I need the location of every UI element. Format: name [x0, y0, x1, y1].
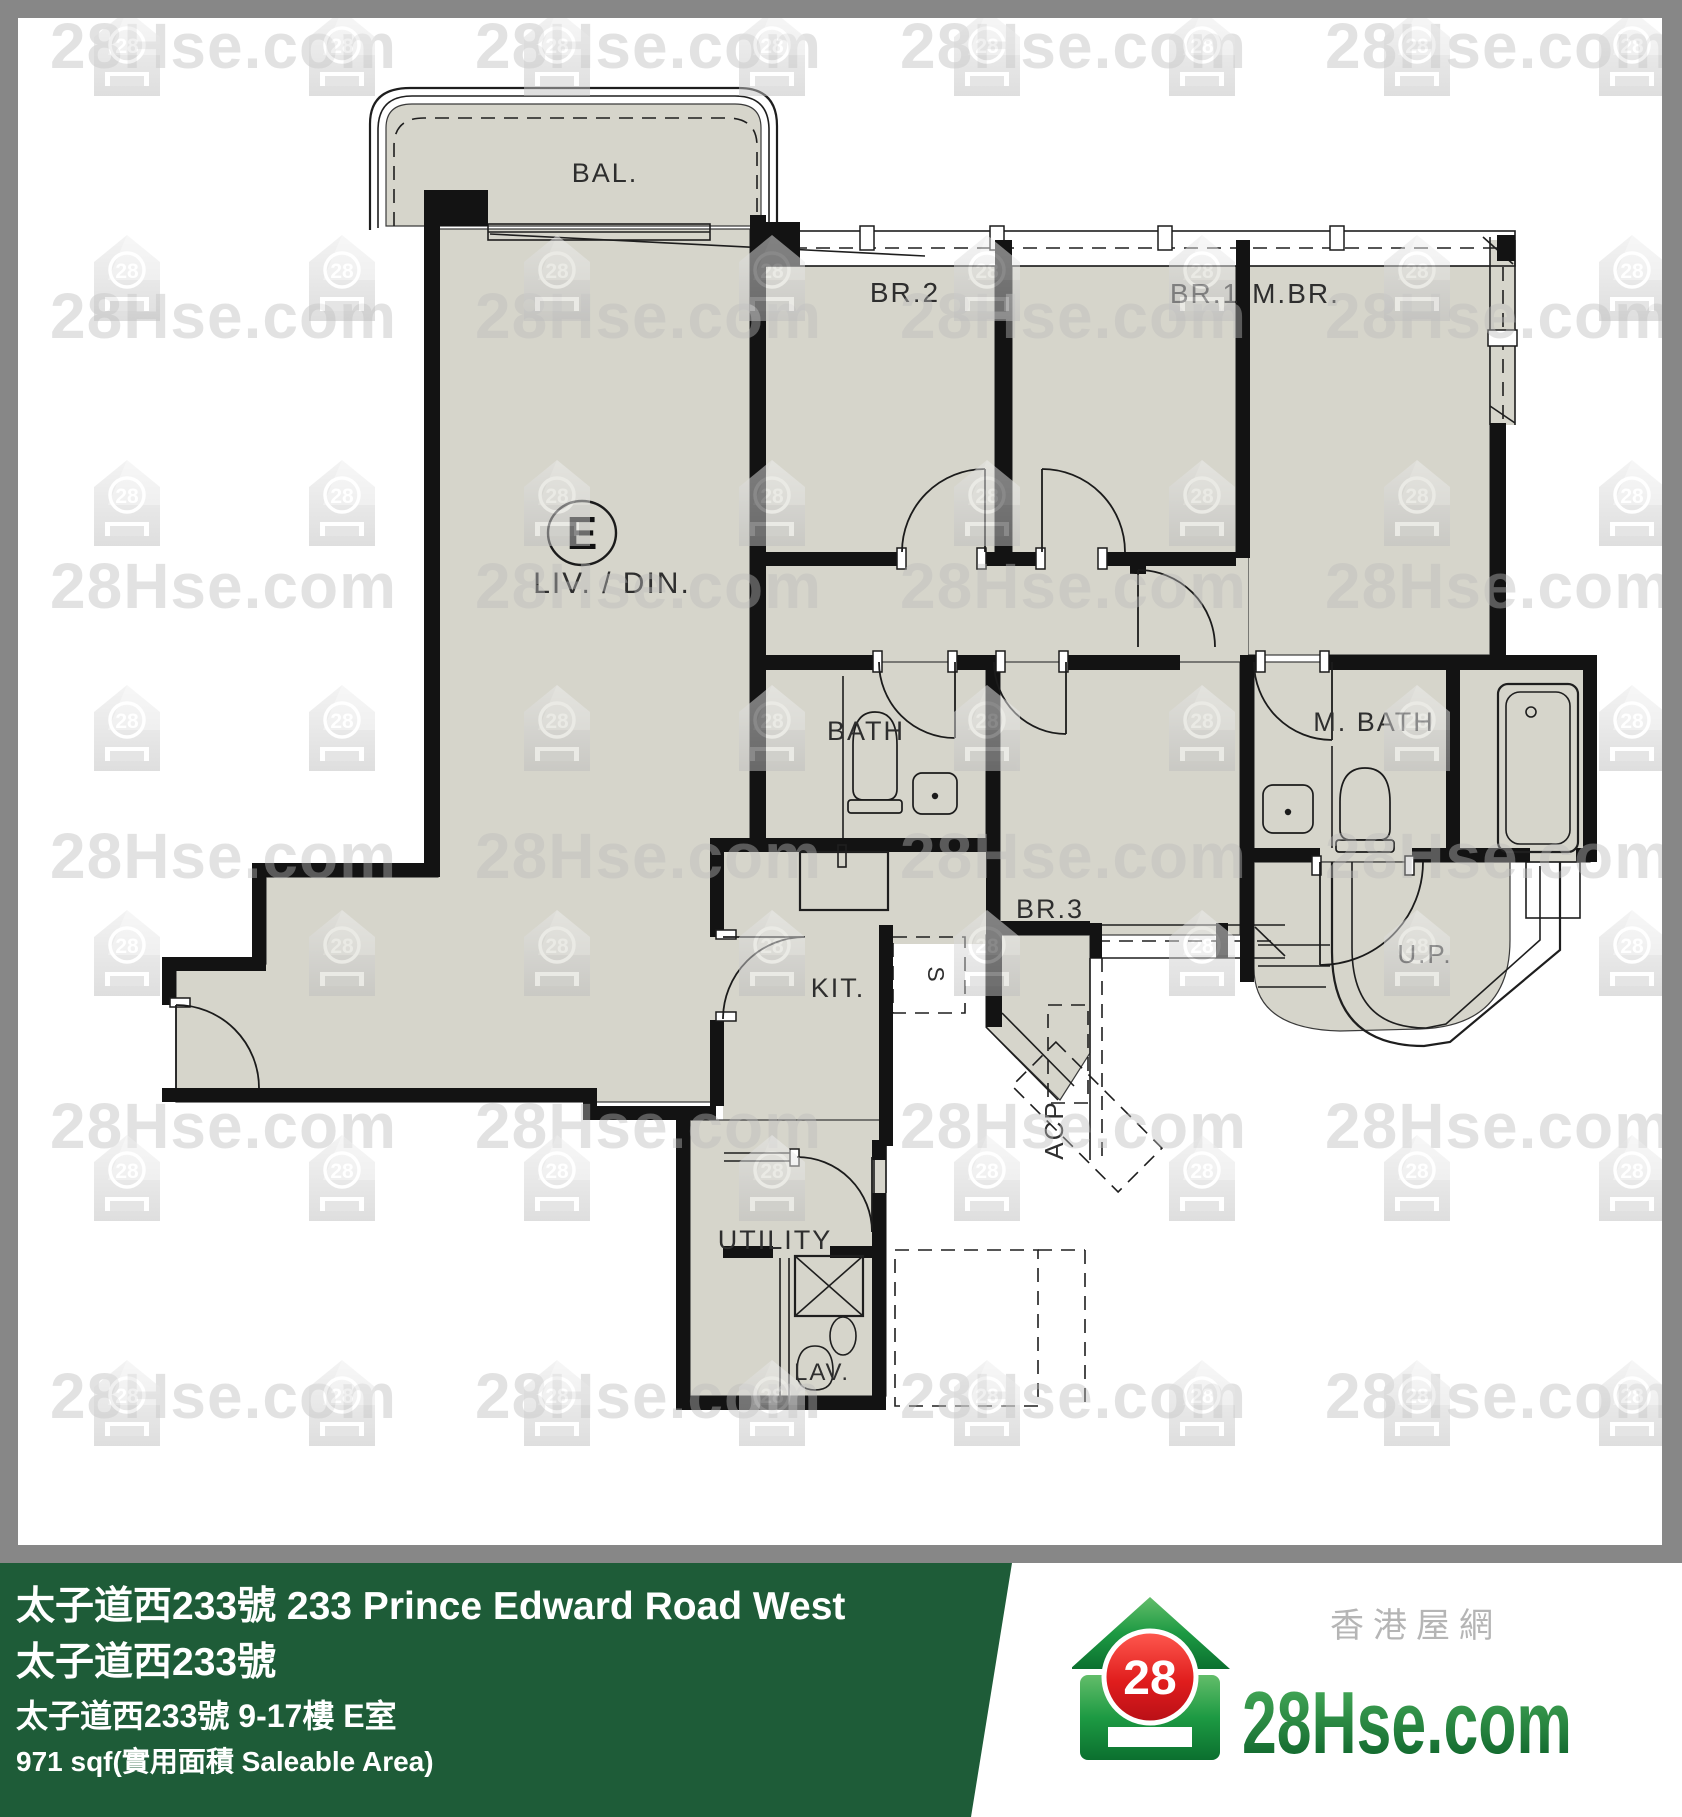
frame-border-top: [0, 0, 1682, 18]
svg-text:28Hse.com: 28Hse.com: [475, 820, 822, 892]
banner-unit-info: 太子道西233號 9-17樓 E室: [16, 1691, 397, 1737]
svg-text:28Hse.com: 28Hse.com: [900, 820, 1247, 892]
room-label-kit: KIT.: [811, 973, 866, 1003]
room-label-utility: UTILITY: [718, 1225, 833, 1255]
banner-estate-name: 太子道西233號: [16, 1631, 276, 1687]
svg-text:28Hse.com: 28Hse.com: [1325, 550, 1672, 622]
room-label-bal: BAL.: [572, 158, 639, 188]
logo-brand-text: 28Hse.com: [1242, 1673, 1572, 1772]
room-label-bath: BATH: [827, 716, 905, 746]
svg-text:28Hse.com: 28Hse.com: [900, 550, 1247, 622]
frame-border-left: [0, 0, 18, 1563]
frame-separator: [0, 1545, 1682, 1563]
svg-text:28: 28: [1123, 1652, 1176, 1705]
site-logo: 28 香港屋網 28Hse.com: [1072, 1595, 1652, 1815]
page: 28: [0, 0, 1682, 1817]
banner-area-info: 971 sqf(實用面積 Saleable Area): [16, 1740, 434, 1780]
banner-title: 太子道西233號 233 Prince Edward Road West: [16, 1575, 845, 1631]
floor-plan: 28: [0, 0, 1682, 1545]
frame-border-right: [1662, 0, 1682, 1563]
room-label-s: S: [923, 966, 949, 983]
logo-tagline: 香港屋網: [1330, 1607, 1502, 1645]
svg-text:28Hse.com: 28Hse.com: [50, 820, 397, 892]
room-label-br3: BR.3: [1016, 894, 1084, 924]
svg-text:28Hse.com: 28Hse.com: [50, 550, 397, 622]
svg-text:28Hse.com: 28Hse.com: [475, 550, 822, 622]
logo-house-icon: 28: [1072, 1597, 1230, 1760]
svg-text:28Hse.com: 28Hse.com: [1325, 820, 1672, 892]
